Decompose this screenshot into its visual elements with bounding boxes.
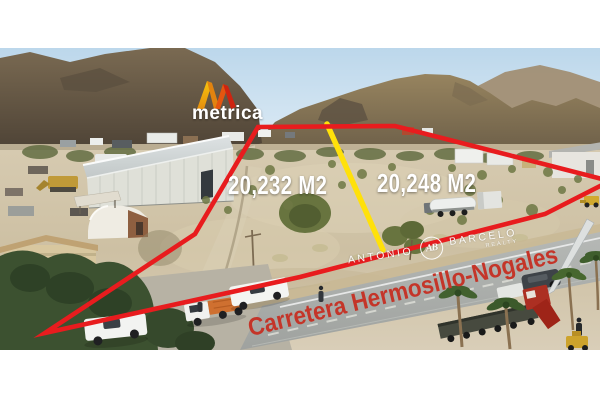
brand-logo: metrica bbox=[190, 80, 280, 125]
lot-left-area-label: 20,232 M2 bbox=[228, 170, 355, 201]
lot-right-area-label: 20,248 M2 bbox=[377, 168, 504, 199]
listing-image: metrica 20,232 M2 20,248 M2 ANTONIO AB B… bbox=[0, 0, 600, 400]
aerial-photo: metrica 20,232 M2 20,248 M2 ANTONIO AB B… bbox=[0, 48, 600, 350]
realtor-monogram-icon: AB bbox=[418, 235, 444, 261]
watermark-first-name: ANTONIO bbox=[347, 245, 414, 266]
brand-logo-text: metrica bbox=[192, 103, 280, 125]
